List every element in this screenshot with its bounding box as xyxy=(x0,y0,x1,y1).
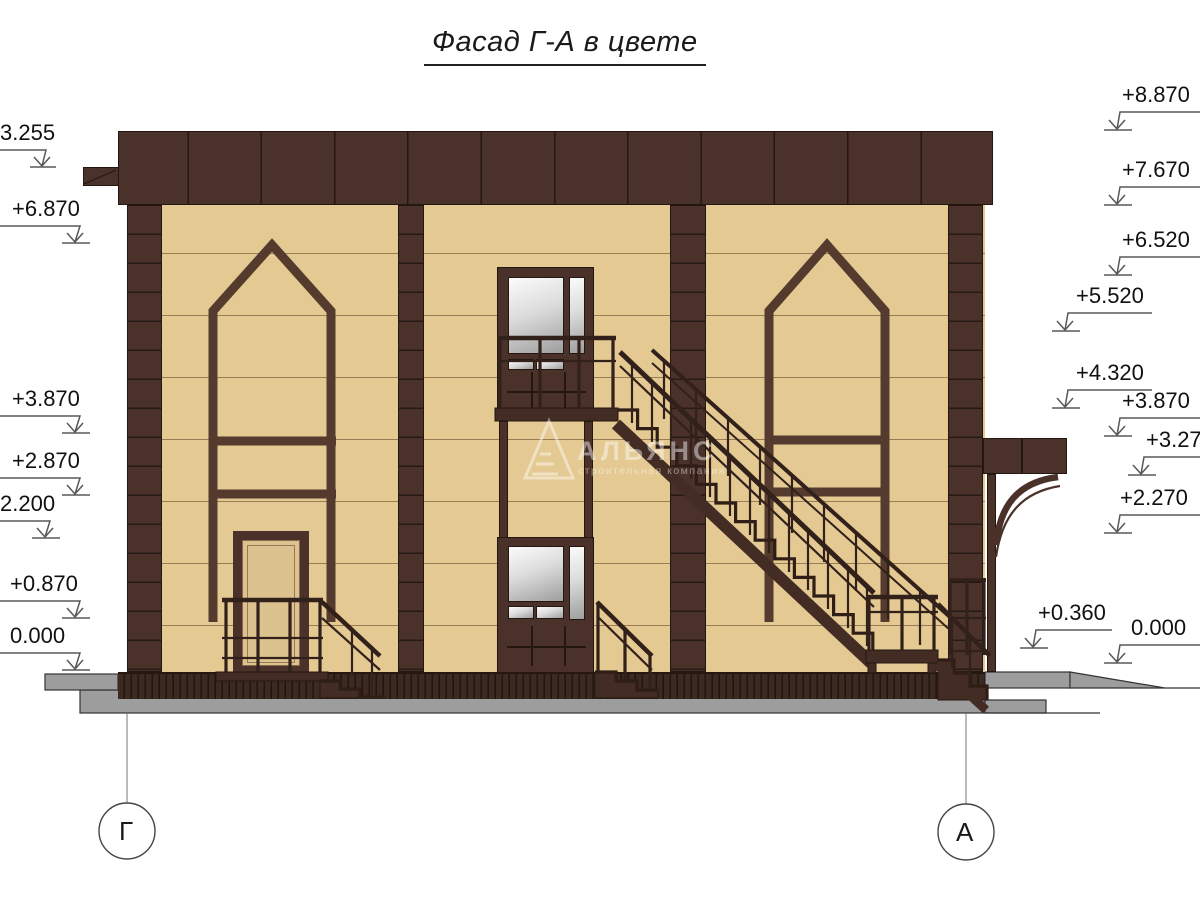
upper-landing-door-unit xyxy=(497,267,594,413)
axis-grid xyxy=(99,713,994,860)
elevation-marker: +5.520 xyxy=(1076,285,1144,307)
axis-label-left: Г xyxy=(119,818,133,844)
axis-label-right: А xyxy=(956,819,973,845)
left-door-leaf-inner xyxy=(247,545,295,663)
elevation-marker: +2.870 xyxy=(12,450,80,472)
canopy-bracket-arc xyxy=(996,477,1060,557)
upper-panel-mullion-2 xyxy=(564,372,566,408)
lower-glass-small-left xyxy=(508,606,534,619)
watermark-name: АЛЬЯНС xyxy=(577,438,717,465)
mid-pilaster-1 xyxy=(398,205,424,672)
landing-support-left xyxy=(499,421,508,538)
elevation-marker: +6.520 xyxy=(1122,229,1190,251)
upper-glass-side xyxy=(569,277,585,354)
upper-glass-small-left xyxy=(508,359,534,370)
upper-glass-small-right xyxy=(536,359,564,370)
watermark-subtitle: строительная компания xyxy=(578,466,726,477)
elevation-marker: +2.270 xyxy=(1120,487,1188,509)
elevation-marker: +7.670 xyxy=(1122,159,1190,181)
elevation-marker: +3.870 xyxy=(12,388,80,410)
left-door-leaf xyxy=(242,540,300,666)
elevation-marker: +4.320 xyxy=(1076,362,1144,384)
lower-glass-small-right xyxy=(536,606,564,619)
facade-drawing-canvas: АЛЬЯНС строительная компания Фасад Г-А в… xyxy=(0,0,1200,900)
canopy-post xyxy=(987,474,996,672)
elevation-marker: 0.000 xyxy=(1131,617,1186,639)
elevation-marker: 2.200 xyxy=(0,493,55,515)
corner-pilaster-right xyxy=(948,205,983,672)
parapet-band xyxy=(118,131,993,205)
elevation-marker: +8.870 xyxy=(1122,84,1190,106)
drawing-title: Фасад Г-А в цвете xyxy=(424,26,706,66)
elevation-marker: +0.360 xyxy=(1038,602,1106,624)
elevation-marker: +0.870 xyxy=(10,573,78,595)
canopy-slab-joint xyxy=(1021,439,1023,473)
plinth-band xyxy=(118,672,985,699)
upper-glass-main xyxy=(508,277,564,354)
lower-glass-side xyxy=(569,546,585,620)
elevation-marker: +6.870 xyxy=(12,198,80,220)
left-entrance-door xyxy=(233,531,309,673)
elevation-marker: +3.27 xyxy=(1146,429,1200,451)
canopy-slab xyxy=(983,438,1067,474)
elevation-marker: 3.255 xyxy=(0,122,55,144)
lower-panel-rail xyxy=(507,646,586,648)
lower-glass-main xyxy=(508,546,564,602)
upper-panel-rail xyxy=(507,391,586,393)
elevation-marker: 0.000 xyxy=(10,625,65,647)
ground-floor-door-unit xyxy=(497,537,594,673)
elevation-marker: +3.870 xyxy=(1122,390,1190,412)
upper-panel-mullion-1 xyxy=(531,372,533,408)
corner-pilaster-left xyxy=(127,205,162,672)
eave-beam-left xyxy=(83,167,119,186)
